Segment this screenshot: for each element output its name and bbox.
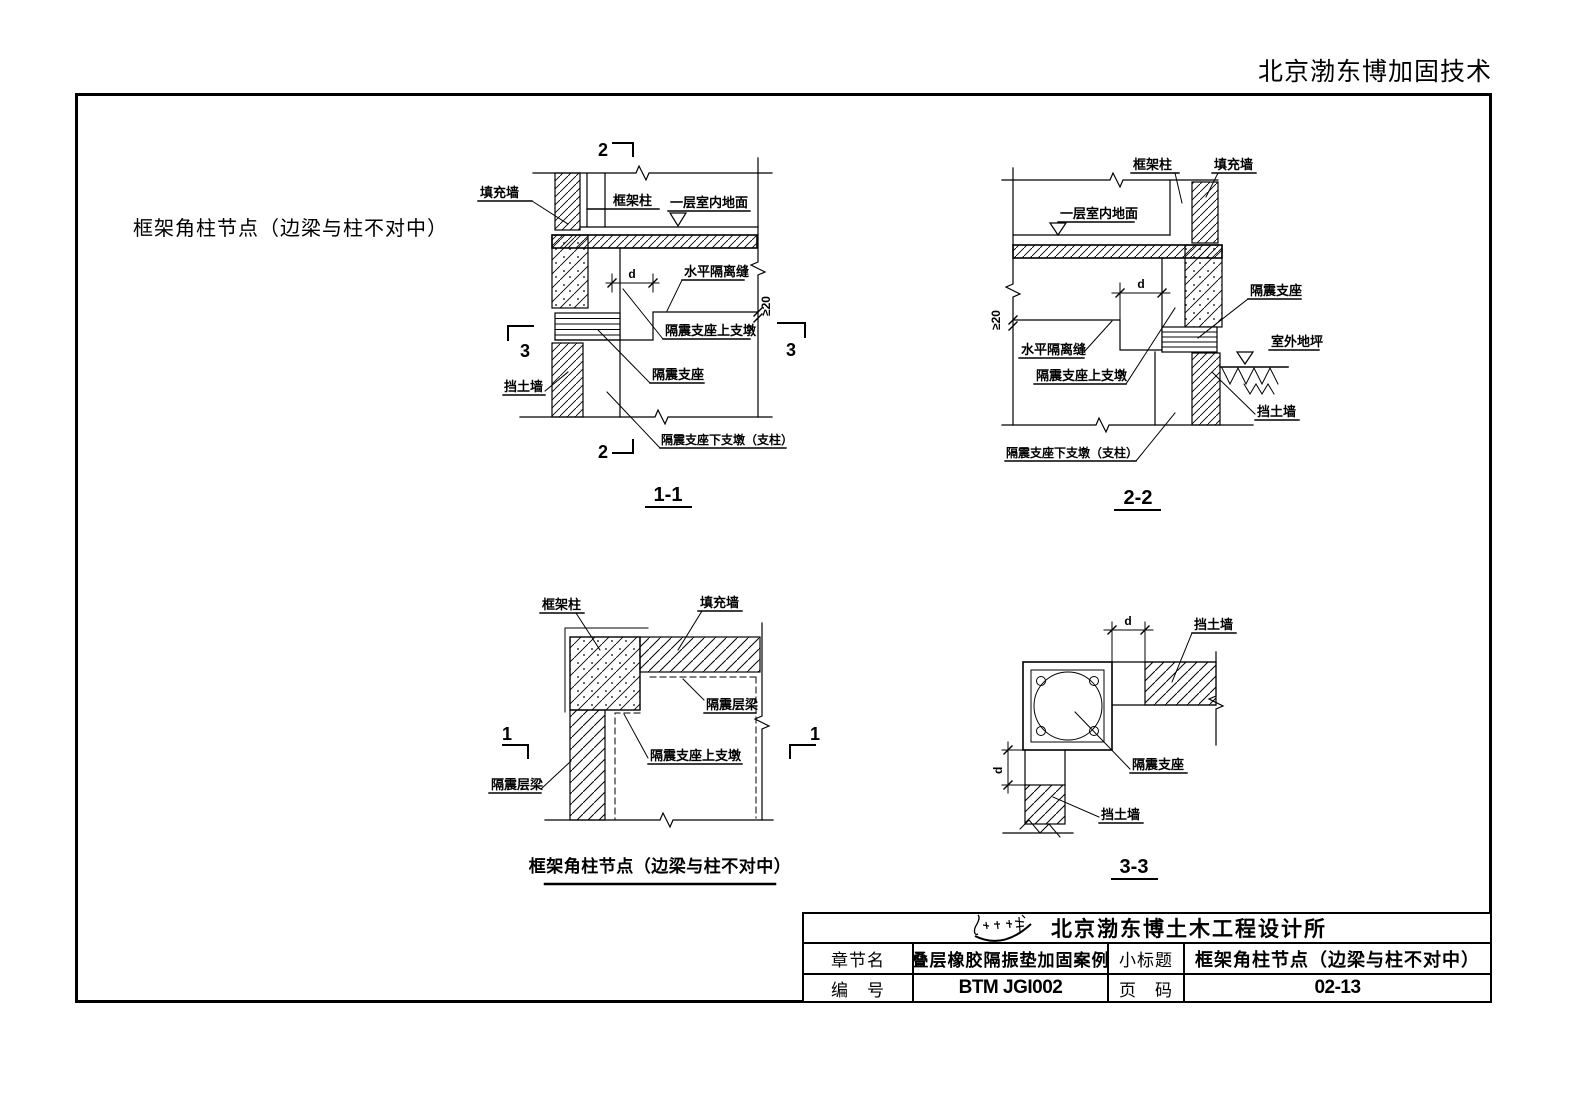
drawing-sheet: 北京渤东博加固技术 框架角柱节点（边梁与柱不对中） [0, 0, 1571, 1098]
dim-ge20: ≥20 [989, 310, 1003, 330]
dim-ge20: ≥20 [759, 296, 773, 316]
label-bearing: 隔震支座 [652, 367, 704, 382]
number-label-cell: 编 号 [804, 973, 912, 1001]
section-mark-1-left: 1 [502, 724, 512, 744]
view-title-3-3: 3-3 [1120, 856, 1149, 878]
section-mark-2-bottom: 2 [598, 442, 608, 462]
label-lower-pier: 隔震支座下支墩（支柱） [1006, 445, 1138, 460]
chapter-value-cell: 叠层橡胶隔振垫加固案例 [912, 944, 1107, 973]
label-isolation-beam: 隔震层梁 [491, 777, 544, 792]
title-block-header: 北京渤东博土木工程设计所 [804, 914, 1490, 944]
view-title-2-2: 2-2 [1124, 487, 1153, 509]
label-lower-pier: 隔震支座下支墩（支柱） [661, 432, 793, 447]
label-outdoor-ground: 室外地坪 [1271, 334, 1323, 349]
label-fill-wall: 填充墙 [1214, 157, 1253, 172]
page-label-cell: 页 码 [1107, 973, 1183, 1001]
label-floor-surface: 一层室内地面 [1060, 206, 1138, 221]
section-mark-2-top: 2 [598, 140, 608, 160]
view-1-1-texts: 填充墙 框架柱 一层室内地面 水平隔离缝 隔震支座上支墩 隔震支座 挡土墙 隔震… [480, 140, 796, 506]
label-frame-column: 框架柱 [542, 597, 581, 612]
chapter-label-cell: 章节名 [804, 944, 912, 973]
dim-d: d [1137, 277, 1144, 291]
label-horizontal-seam: 水平隔离缝 [684, 264, 749, 279]
view-title-1-1: 1-1 [654, 484, 683, 506]
label-retaining-wall: 挡土墙 [504, 379, 543, 394]
dim-d-rotated: d [991, 767, 1005, 774]
label-upper-pier: 隔震支座上支墩 [1036, 368, 1128, 383]
title-block: 北京渤东博土木工程设计所 章节名 叠层橡胶隔振垫加固案例 小标题 框架角柱节点（… [802, 912, 1492, 1003]
institute-name: 北京渤东博土木工程设计所 [1051, 913, 1327, 943]
dim-d: d [1124, 614, 1131, 628]
label-bearing: 隔震支座 [1132, 757, 1184, 772]
institute-logo-icon [967, 912, 1041, 944]
label-retaining-wall: 挡土墙 [1257, 404, 1296, 419]
plan-caption: 框架角柱节点（边梁与柱不对中） [529, 856, 792, 876]
label-horizontal-seam: 水平隔离缝 [1021, 342, 1086, 357]
label-isolation-beam: 隔震层梁 [706, 697, 759, 712]
label-upper-pier: 隔震支座上支墩 [665, 323, 757, 338]
label-upper-pier: 隔震支座上支墩 [650, 748, 742, 763]
label-fill-wall: 填充墙 [700, 595, 739, 610]
section-mark-3-left: 3 [520, 341, 530, 361]
label-fill-wall: 填充墙 [480, 185, 519, 200]
label-retaining-wall: 挡土墙 [1101, 807, 1140, 822]
label-floor-surface: 一层室内地面 [670, 195, 748, 210]
subtitle-label-cell: 小标题 [1107, 944, 1183, 973]
label-frame-column: 框架柱 [1133, 157, 1172, 172]
section-mark-3-right: 3 [786, 340, 796, 360]
view-2-2-texts: 框架柱 填充墙 一层室内地面 隔震支座 水平隔离缝 隔震支座上支墩 室外地坪 挡… [989, 157, 1323, 509]
subtitle-value-cell: 框架角柱节点（边梁与柱不对中） [1183, 944, 1490, 973]
dim-d: d [628, 267, 635, 281]
label-bearing: 隔震支座 [1250, 283, 1302, 298]
label-retaining-wall: 挡土墙 [1194, 617, 1233, 632]
page-value-cell: 02-13 [1183, 973, 1490, 1001]
label-frame-column: 框架柱 [613, 193, 652, 208]
number-value-cell: BTM JGI002 [912, 973, 1107, 1001]
section-mark-1-right: 1 [810, 724, 820, 744]
view-3-3 [1002, 622, 1236, 879]
